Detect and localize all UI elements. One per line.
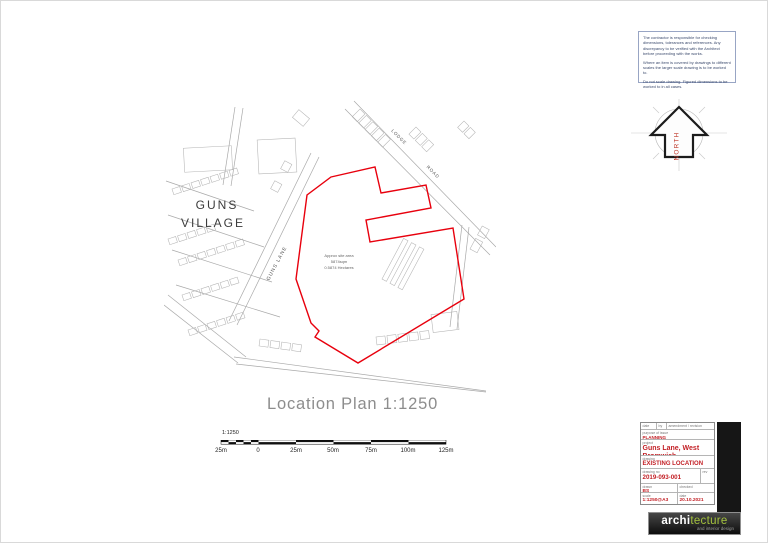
north-arrow-icon: NORTH [631,99,727,171]
drawing-row: drawing EXISTING LOCATION PLAN [641,456,714,469]
site-area-line3: 0.5874 Hectares [324,265,353,270]
revision-amendment-label: amendment / revision [667,423,714,428]
revision-header-row: date by amendment / revision [641,423,714,430]
scale-bar-segments [221,440,446,444]
scale-value: 1:1250@A3 [641,498,677,504]
north-label: NORTH [674,132,681,161]
checked-label: checked [678,484,714,489]
site-area-line1: Approx site area [324,253,354,258]
scale-tick: 100m [400,448,415,454]
site-area-line2: 5874sqm [331,259,348,264]
architecture-logo: architecture and interior design [648,512,741,535]
note-paragraph: The contractor is responsible for checki… [643,35,731,57]
scale-tick: 25m [290,448,302,454]
village-label-line1: GUNS [196,198,239,212]
site-boundary [296,167,464,363]
revision-by-label: by [657,423,666,428]
scale-tick: 0 [256,448,259,454]
scale-bar [219,440,459,446]
title-block: date by amendment / revision purpose of … [640,422,715,505]
village-label-line2: VILLAGE [181,216,245,230]
revision-date-label: date [641,423,656,428]
scale-tick: 50m [327,448,339,454]
plan-title: Location Plan 1:1250 [267,395,438,414]
scale-ratio-label: 1:1250 [222,430,239,436]
map-roads [164,101,496,392]
logo-tagline: and interior design [697,527,740,532]
location-plan-map: GUNS VILLAGE GUNS LANE LODGE ROAD Approx… [164,99,496,395]
note-paragraph: Where an item is covered by drawings to … [643,60,731,76]
drawing-no-value: 2019-093-001 [641,474,700,481]
logo-text-archi: archi [661,515,690,527]
scale-tick: 75m [365,448,377,454]
scale-tick: 25m [215,448,227,454]
logo-text-tecture: tecture [690,515,727,527]
road-label-1: LODGE [390,128,408,146]
note-paragraph: Do not scale drawing. Figured dimensions… [643,79,731,90]
drawing-sheet: The contractor is responsible for checki… [0,0,768,543]
drawn-checked-row: drawn BS checked [641,484,714,493]
project-row: project Guns Lane, West Bromwich [641,440,714,456]
drawing-no-row: drawing no 2019-093-001 rev [641,469,714,484]
drawing-value: EXISTING LOCATION PLAN [641,461,714,469]
scale-date-row: scale 1:1250@A3 date 20.10.2021 [641,493,714,504]
purpose-row: purpose of issue PLANNING [641,430,714,440]
guns-lane-label: GUNS LANE [266,245,289,281]
project-value: Guns Lane, West Bromwich [641,445,714,456]
scale-tick: 125m [438,448,453,454]
rev-label: rev [701,469,714,474]
general-notes-box: The contractor is responsible for checki… [638,31,736,83]
date-value: 20.10.2021 [678,498,714,504]
